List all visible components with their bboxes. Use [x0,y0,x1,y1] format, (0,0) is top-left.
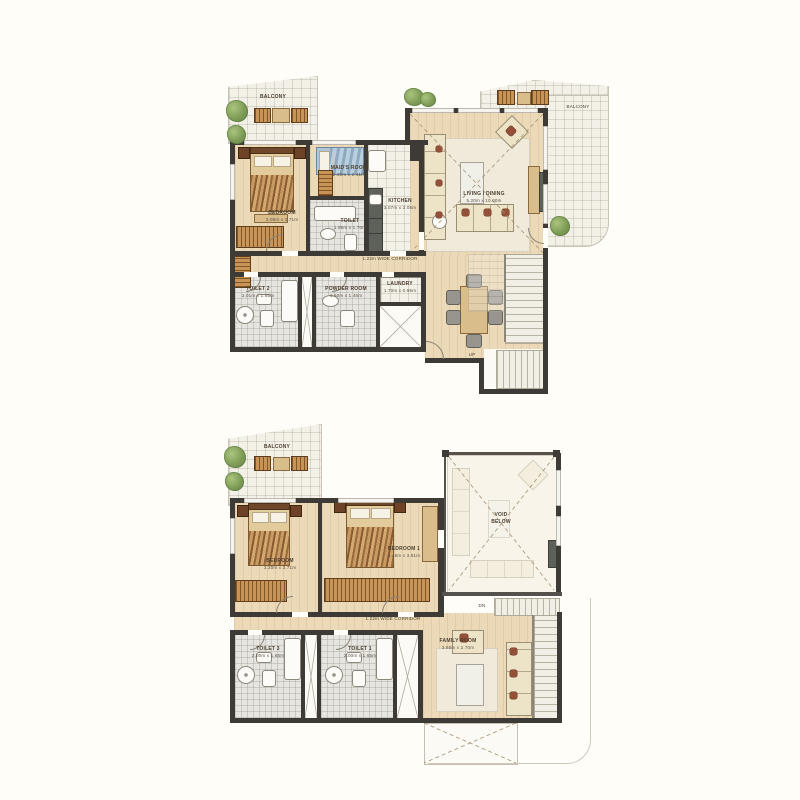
pillow [254,156,272,167]
room-name: LIVING / DINING [463,191,504,197]
coffee-table [456,664,484,706]
label-powder-room: POWDER ROOM1.60m x 1.45m [325,286,367,299]
label-laundry: LAUNDRY1.70m x 0.95m [384,281,416,294]
balcony-chair [254,108,271,123]
room-dim: 5.20m x 10.00m [463,198,504,204]
stairs-entry-flight [496,350,544,389]
tree [550,216,570,236]
room-name: TOILET 3 [256,646,279,652]
stairs-flight [494,598,560,616]
window [543,184,548,224]
window [338,498,394,503]
nightstand [290,505,302,517]
wall [317,635,321,720]
label-maids-room: MAID'S ROOM2.30m x 2.41m [331,165,367,178]
wc [340,310,355,327]
label-bedroom: BEDROOM3.20m x 3.71m [264,558,296,571]
window [556,470,561,506]
wall [376,274,380,348]
door-gap [292,612,308,617]
wc [352,670,366,687]
pillow [273,156,291,167]
wall [312,274,316,348]
label-kitchen: KITCHEN3.07m x 2.05m [384,198,416,211]
room-dim: 1.95m x 1.70m [334,225,366,231]
cushion [510,648,517,655]
label-toilet3: TOILET 32.00m x 1.65m [252,646,284,659]
balcony-text: BALCONY [567,104,590,109]
shaft-x [302,277,312,347]
window [504,108,538,113]
window [230,164,235,200]
bed [346,504,394,568]
wall [418,632,423,723]
shaft-x [397,635,418,718]
label-balcony: BALCONY [260,94,286,101]
stairs-up-text: UP [469,352,476,357]
pillow [371,508,391,519]
balcony-text: BALCONY [260,94,286,100]
tree [226,100,248,122]
room-name: POWDER ROOM [325,286,367,292]
dining-chair [466,334,482,348]
shower [237,666,255,684]
tree [225,472,244,491]
stairs-flight [534,615,559,720]
tree [224,446,246,468]
stove [368,218,383,234]
room-dim: 2.01m x 1.65m [242,293,274,299]
window [244,498,296,503]
balcony-table [517,92,531,105]
window [458,108,500,113]
room-name: TOILET 1 [348,646,371,652]
void-wall [444,453,446,592]
void-wall [444,452,560,455]
wall [557,612,562,723]
room-dim: 3.05m x 3.71m [266,217,298,223]
balcony-chair [254,456,271,471]
door-gap [438,530,444,548]
tree [227,125,246,144]
headboard [250,147,294,154]
wall [230,498,235,617]
column [410,145,419,161]
balcony-table [272,108,290,123]
wall [393,635,397,720]
void-text: VOID BELOW [491,512,511,525]
room-dim: 3.07m x 2.05m [384,205,416,211]
shaft-x [305,635,317,718]
cushion [510,670,517,677]
label-living-dining: LIVING / DINING5.20m x 10.00m [463,191,504,204]
pillow [252,512,269,523]
room-name: KITCHEN [388,198,412,204]
blanket [251,175,293,211]
room-name: BEDROOM [266,558,294,564]
label-bedroom: BEDROOM3.05m x 3.71m [266,210,298,223]
bathtub [281,280,298,322]
tree [420,92,436,107]
room-dim: 4.45m x 3.81m [388,553,420,559]
room-dim: 2.00m x 1.65m [252,653,284,659]
window [543,126,548,170]
nightstand [238,147,250,159]
stairs-upper-dashed [468,254,507,312]
label-corridor: 1.22m WIDE CORRIDOR [365,616,420,622]
window [412,108,454,113]
void-wall [442,592,562,596]
wall [418,718,562,723]
bathtub [376,638,393,680]
room-dim: 1.60m x 1.45m [325,293,367,299]
corridor-text: 1.22m WIDE CORRIDOR [362,256,417,261]
room-name: BEDROOM 1 [388,546,420,552]
shower [236,306,254,324]
label-toilet: TOILET1.95m x 1.70m [334,218,366,231]
balcony-chair [497,90,515,105]
room-dim: 3.65m x 2.70m [440,645,477,651]
stairs-dn-text: DN [479,603,486,608]
wall [364,140,368,256]
nightstand [294,147,306,159]
door-gap [419,232,424,250]
room-name: MAID'S ROOM [331,165,367,171]
dining-chair [488,310,503,325]
blanket [347,527,393,567]
door-gap [282,251,298,256]
balcony-chair [291,108,308,123]
balcony-chair [291,456,308,471]
fridge [368,150,386,172]
void-dashes [424,723,516,763]
shower [325,666,343,684]
stair-rail [532,615,534,718]
bathtub [284,638,301,680]
wc [260,310,274,327]
wall [306,196,368,200]
label-void-below: VOID BELOW [487,512,515,526]
label-toilet2: TOILET 22.01m x 1.65m [242,286,274,299]
pillow [270,512,287,523]
shaft-x [380,306,421,347]
wc [344,234,357,251]
room-dim: 2.00m x 1.65m [344,653,376,659]
balcony-table [273,457,290,471]
wall [405,108,410,144]
wall [318,498,322,617]
balcony-chair [531,90,549,105]
headboard [248,503,290,510]
window [312,140,356,145]
label-up: UP [469,352,476,358]
wall [479,389,548,394]
wall [376,302,422,306]
corridor-text: 1.22m WIDE CORRIDOR [365,616,420,621]
wall [298,274,302,348]
stairs-flight [505,254,545,344]
wardrobe [235,580,287,602]
room-dim: 1.70m x 0.95m [384,288,416,294]
door-gap [382,272,394,277]
room-name: LAUNDRY [387,281,413,287]
wc [262,670,276,687]
bed [250,152,294,212]
wardrobe [324,578,430,602]
ceiling-dashes [405,108,548,257]
closet [422,506,438,562]
floorplan-canvas: BALCONY BALCONY BEDROOM3.05m x 3.71m MAI… [0,0,800,800]
window [244,140,296,145]
room-dim: 2.30m x 2.41m [331,172,367,178]
dining-chair [446,290,461,305]
label-dn: DN [479,603,486,609]
cushion [510,692,517,699]
window [230,518,235,554]
room-name: BEDROOM [268,210,296,216]
wall [543,344,548,394]
label-family-room: FAMILY ROOM3.65m x 2.70m [440,638,477,651]
dining-chair [446,310,461,325]
kitchen-sink [369,194,382,205]
label-bedroom1: BEDROOM 14.45m x 3.81m [388,546,420,559]
stair-rail [504,254,506,342]
wall [230,347,426,352]
wall [301,635,305,720]
pillow [350,508,370,519]
room-name: TOILET 2 [246,286,269,292]
room-dim: 3.20m x 3.71m [264,565,296,571]
label-balcony: BALCONY [264,444,290,451]
room-name: FAMILY ROOM [440,638,477,644]
window [556,516,561,546]
label-balcony-right: BALCONY [567,104,590,110]
column [442,450,449,457]
wall [230,630,235,723]
room-name: TOILET [341,218,360,224]
label-corridor: 1.22m WIDE CORRIDOR [362,256,417,262]
balcony-text: BALCONY [264,444,290,450]
nightstand [237,505,249,517]
label-toilet1: TOILET 12.00m x 1.65m [344,646,376,659]
